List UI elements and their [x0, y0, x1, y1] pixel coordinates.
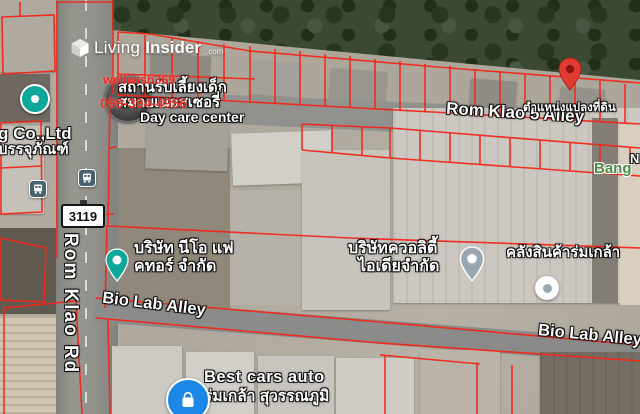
phone-watermark: 099-394-4956 [100, 95, 187, 111]
brand-tld: .com [206, 47, 223, 56]
place-label-warehouse[interactable]: คลังสินค้าร่มเกล้า [506, 240, 620, 264]
left-company-english: g Co.,Ltd [0, 126, 72, 142]
bus-glyph [82, 173, 92, 183]
bus-stop-icon[interactable] [29, 180, 47, 198]
route-shield-3119: 3119 [61, 204, 105, 228]
bus-glyph [33, 184, 43, 194]
locality-label-fragment[interactable]: Bang [594, 160, 632, 177]
place-label-quality-idea[interactable]: บริษัทควอลิตี้ ไอเดียจำกัด [348, 240, 439, 276]
agent-id-watermark: wellwish369 [103, 73, 175, 87]
shopping-bag-glyph [178, 390, 198, 410]
brand-name-light: Living [94, 38, 140, 58]
pin-center-dot [31, 95, 39, 103]
left-company-thai: บรรจุภัณฑ์ [0, 142, 72, 158]
neo-factor-line1: บริษัท นีโอ แฟ [134, 240, 234, 258]
place-label-best-cars[interactable]: Best cars auto ร่มเกล้า สุวรรณภูมิ [204, 368, 329, 406]
place-label-neo-factor[interactable]: บริษัท นีโอ แฟ คทอร์ จำกัด [134, 240, 234, 276]
edge-label-fragment: N [630, 151, 639, 166]
quality-idea-pin-icon[interactable] [459, 246, 485, 282]
brand-cube-icon [70, 38, 90, 58]
road-label-rom-klao-rd: Rom Klao Rd [59, 233, 81, 374]
brand-name-bold: Insider [145, 38, 201, 58]
pin-center-dot [543, 284, 552, 293]
neo-factor-line2: คทอร์ จำกัด [134, 258, 234, 276]
bus-stop-icon[interactable] [78, 169, 96, 187]
parcel-outline-path [302, 124, 640, 176]
brand-watermark: LivingInsider.com [70, 38, 223, 58]
shop-dot-pin-icon[interactable] [535, 276, 559, 300]
place-label-left-company[interactable]: g Co.,Ltd บรรจุภัณฑ์ [0, 126, 72, 158]
plot-marker-caption: ตำแหน่งแปลงที่ดิน [523, 99, 616, 117]
neo-factor-pin-icon[interactable] [104, 248, 130, 282]
store-icon[interactable] [166, 378, 210, 414]
best-cars-english: Best cars auto [204, 368, 329, 387]
plot-pin-icon[interactable] [558, 57, 582, 91]
quality-idea-line1: บริษัทควอลิตี้ [348, 240, 439, 258]
shield-tab [80, 200, 87, 204]
daycare-english: Day care center [140, 110, 244, 125]
map-canvas[interactable]: Rom Klao Rd Rom Klao 5 Alley Bio Lab All… [0, 0, 640, 414]
best-cars-thai: ร่มเกล้า สุวรรณภูมิ [204, 387, 329, 406]
route-shield-number: 3119 [69, 209, 97, 224]
quality-idea-line2: ไอเดียจำกัด [358, 258, 439, 276]
teal-dot-pin-icon[interactable] [20, 84, 50, 114]
